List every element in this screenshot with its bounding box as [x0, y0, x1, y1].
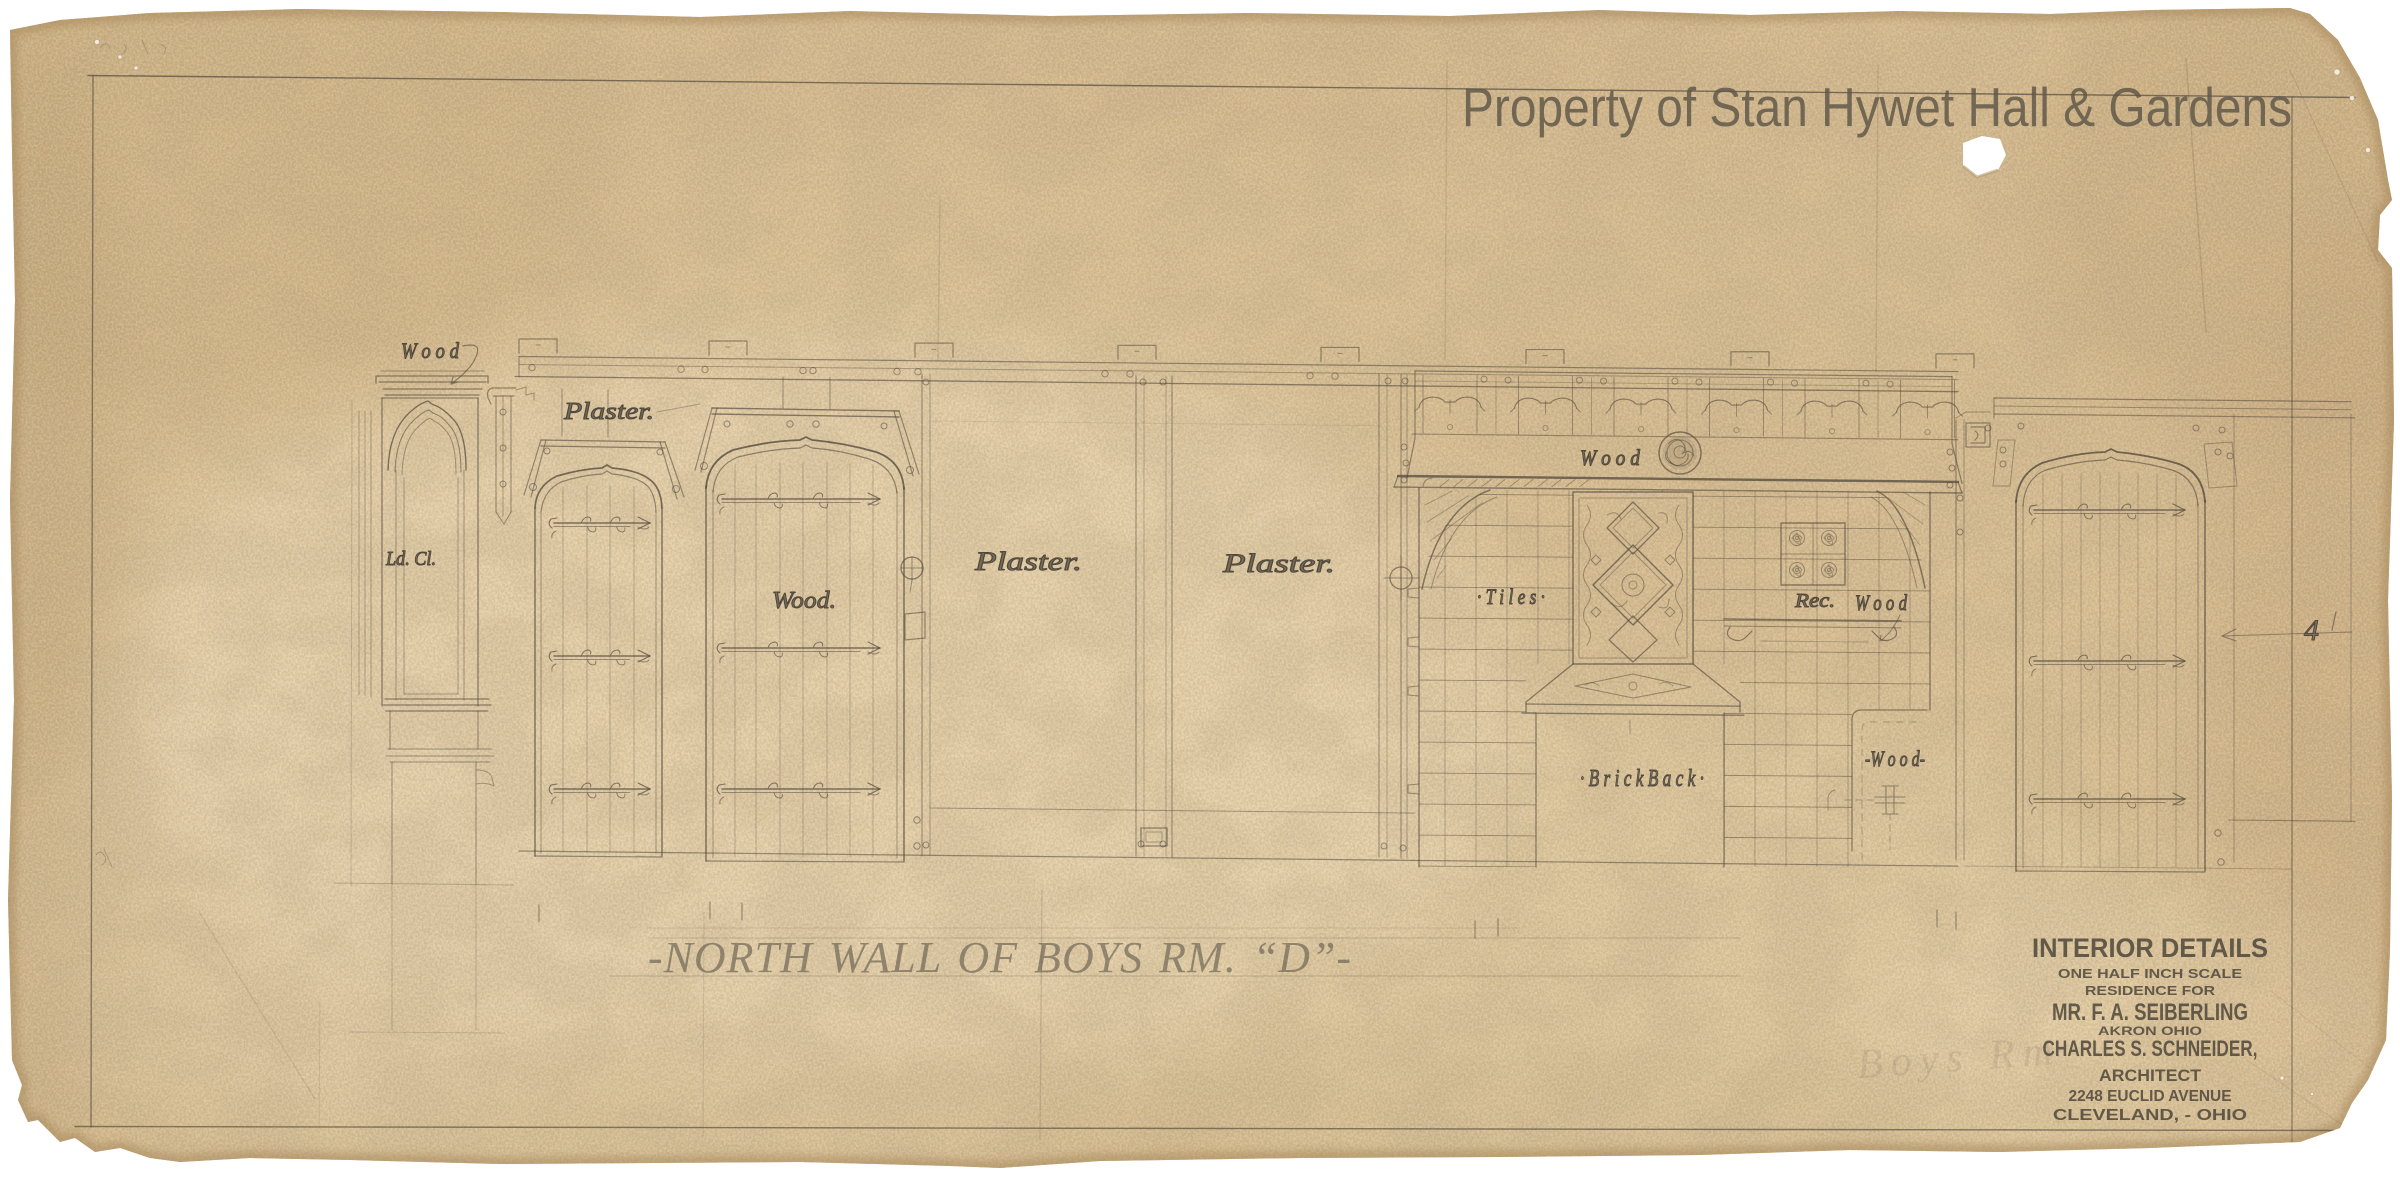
svg-text:CLEVELAND, - OHIO: CLEVELAND, - OHIO: [2053, 1107, 2247, 1124]
svg-text:Ld. Cl.: Ld. Cl.: [385, 548, 436, 570]
svg-text:ARCHITECT: ARCHITECT: [2099, 1067, 2201, 1085]
svg-text:W o o d: W o o d: [401, 338, 460, 363]
svg-text:CHARLES S. SCHNEIDER,: CHARLES S. SCHNEIDER,: [2043, 1036, 2258, 1061]
svg-text:· T i l e s ·: · T i l e s ·: [1477, 584, 1545, 609]
svg-text:Wood.: Wood.: [772, 588, 836, 614]
svg-text:RESIDENCE FOR: RESIDENCE FOR: [2085, 983, 2216, 998]
svg-text:Property of Stan Hywet Hall &: Property of Stan Hywet Hall & Gardens: [1462, 76, 2292, 138]
svg-text:INTERIOR DETAILS: INTERIOR DETAILS: [2032, 933, 2268, 963]
svg-text:W o o d: W o o d: [1855, 590, 1908, 615]
svg-text:-W o o d-: -W o o d-: [1865, 746, 1925, 771]
svg-text:MR. F. A. SEIBERLING: MR. F. A. SEIBERLING: [2052, 999, 2248, 1026]
svg-text:W o o d: W o o d: [1580, 445, 1641, 470]
svg-text:ONE HALF INCH SCALE: ONE HALF INCH SCALE: [2058, 966, 2242, 981]
svg-text:Plaster.: Plaster.: [1222, 549, 1335, 578]
svg-text:· B r i c k B a c k ·: · B r i c k B a c k ·: [1580, 766, 1704, 792]
svg-text:-NORTH WALL OF BOYS RM. “D”-: -NORTH WALL OF BOYS RM. “D”-: [648, 933, 1352, 982]
svg-text:Rec.: Rec.: [1794, 590, 1835, 612]
svg-text:Plaster.: Plaster.: [974, 547, 1082, 576]
svg-text:2248 EUCLID AVENUE: 2248 EUCLID AVENUE: [2069, 1088, 2232, 1105]
svg-text:4: 4: [2304, 614, 2319, 647]
